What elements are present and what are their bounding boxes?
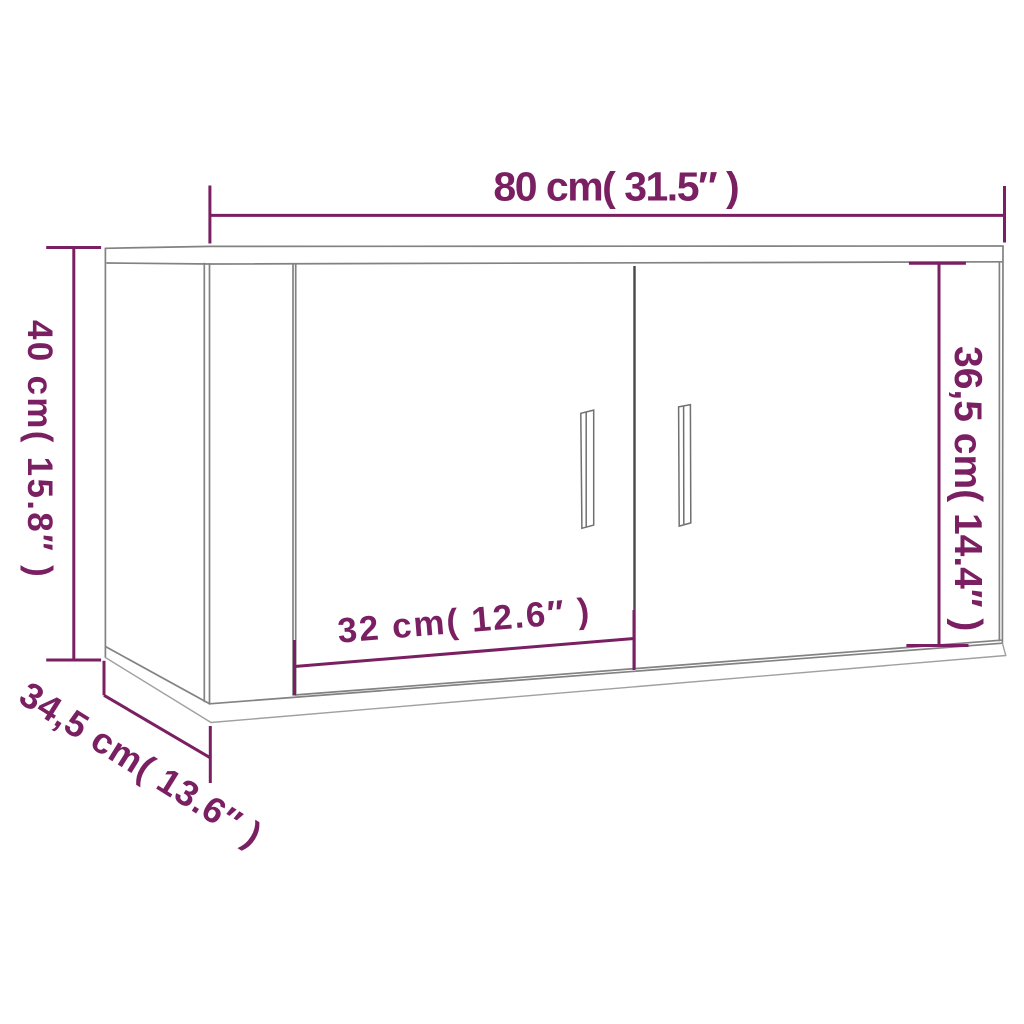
- svg-text:40 cm( 15.8″ ): 40 cm( 15.8″ ): [20, 320, 59, 579]
- svg-text:80 cm( 31.5″ ): 80 cm( 31.5″ ): [493, 164, 738, 210]
- svg-text:36,5 cm( 14.4″ ): 36,5 cm( 14.4″ ): [946, 346, 989, 631]
